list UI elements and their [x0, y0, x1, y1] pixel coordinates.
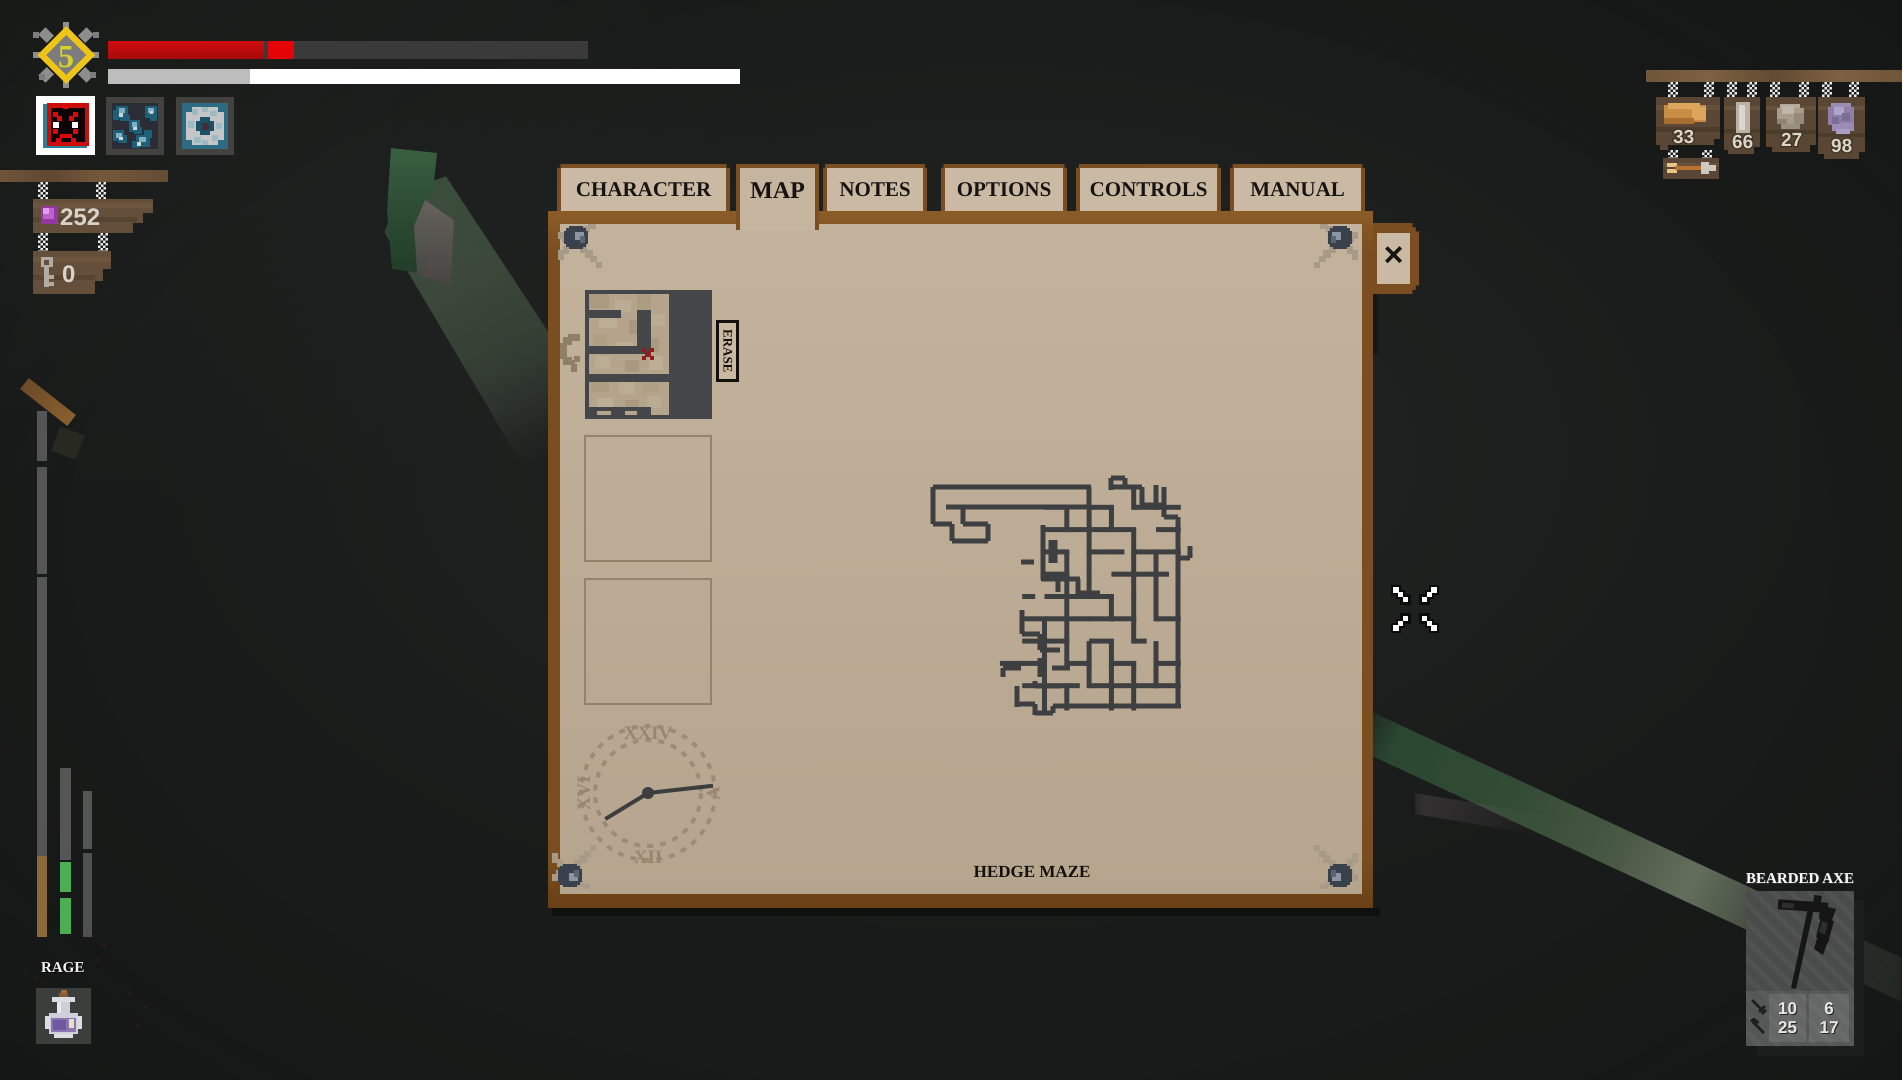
svg-text:252: 252: [60, 204, 100, 231]
svg-text:0: 0: [62, 261, 75, 288]
svg-text:98: 98: [1831, 136, 1852, 157]
svg-text:XVI: XVI: [574, 776, 595, 811]
svg-text:33: 33: [1673, 127, 1694, 148]
svg-text:XII: XII: [634, 847, 663, 867]
svg-text:66: 66: [1732, 132, 1753, 153]
svg-text:XXIV: XXIV: [624, 723, 673, 744]
svg-text:27: 27: [1781, 130, 1802, 151]
svg-text:5: 5: [58, 38, 74, 74]
